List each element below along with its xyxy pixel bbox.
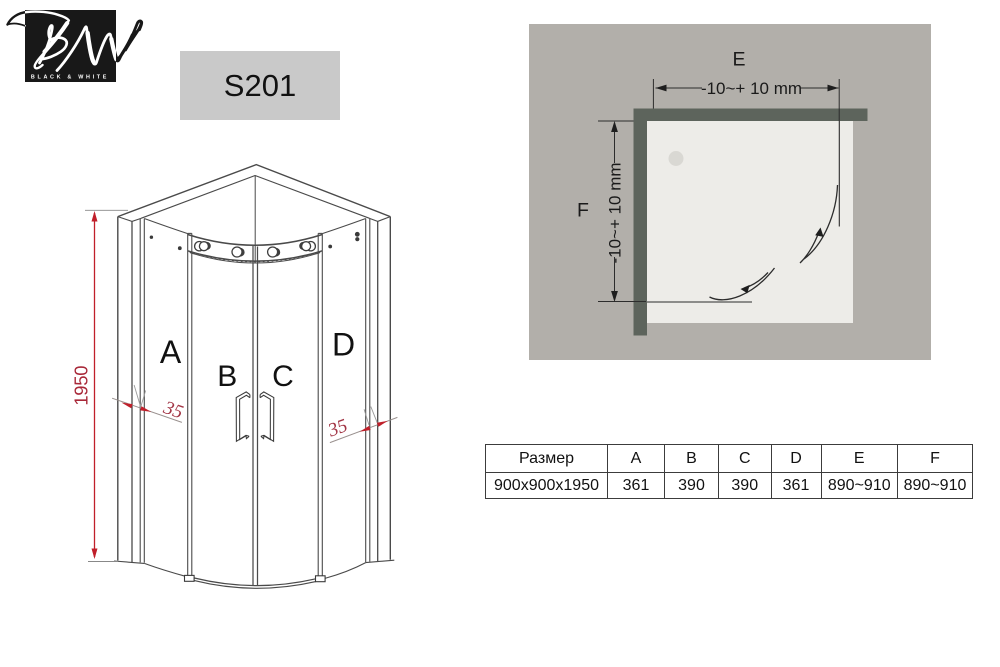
svg-text:-10~+ 10 mm: -10~+ 10 mm bbox=[606, 162, 625, 263]
svg-text:A: A bbox=[160, 334, 182, 370]
svg-text:B: B bbox=[217, 360, 237, 393]
svg-text:D: D bbox=[332, 326, 355, 362]
svg-text:BLACK & WHITE: BLACK & WHITE bbox=[31, 75, 109, 81]
svg-text:-10~+ 10 mm: -10~+ 10 mm bbox=[701, 79, 802, 98]
svg-text:E: E bbox=[732, 49, 745, 71]
svg-text:35: 35 bbox=[324, 415, 350, 442]
svg-text:35: 35 bbox=[160, 397, 186, 423]
svg-text:1950: 1950 bbox=[71, 366, 92, 406]
svg-text:C: C bbox=[272, 360, 294, 393]
svg-text:F: F bbox=[577, 200, 589, 222]
